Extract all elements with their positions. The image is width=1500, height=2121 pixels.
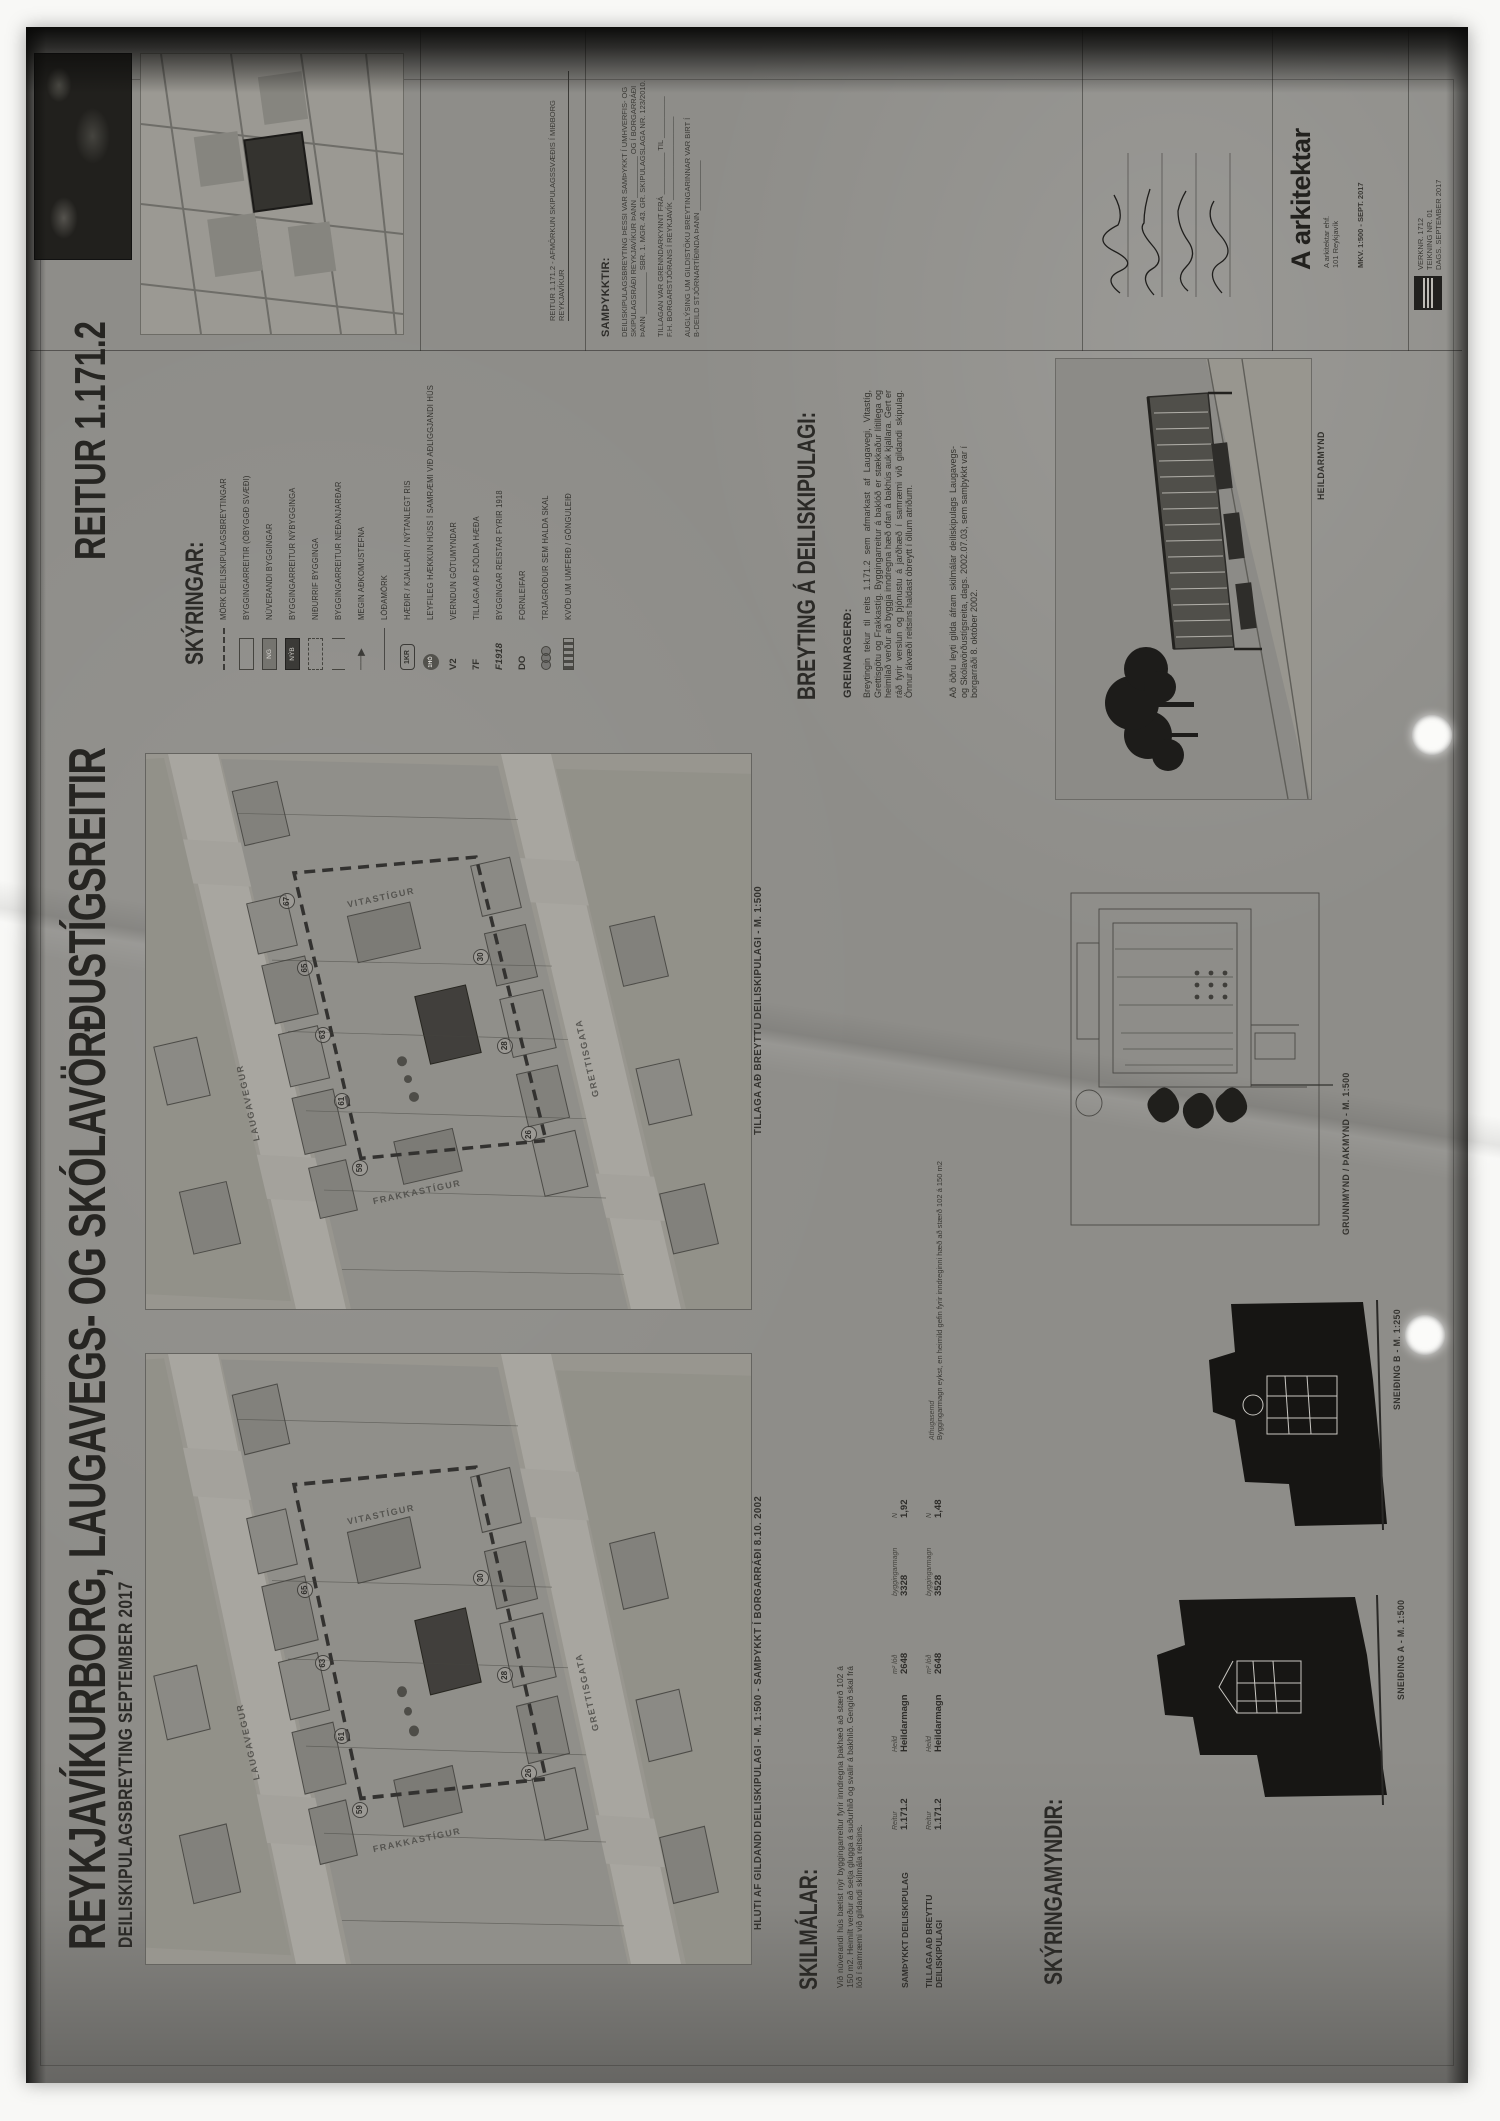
corner-info-line: VERKNR. 1712 bbox=[1416, 180, 1425, 270]
legend-item: F1918BYGGINGAR REISTAR FYRIR 1918 bbox=[488, 340, 511, 670]
legend-symbol-grey-icon: NG bbox=[262, 620, 277, 670]
legend-item-label: VERNDUN GÖTUMYNDAR bbox=[449, 522, 458, 620]
table-cell-header: N bbox=[892, 1440, 899, 1518]
architect-firm-logo-text: A arkitektar bbox=[1286, 128, 1317, 270]
legend-item-label: NIÐURRIF BYGGINGA bbox=[311, 538, 320, 620]
plot-number: 26 bbox=[521, 1765, 537, 1781]
hole-punch-1 bbox=[1412, 715, 1452, 755]
plot-number: 59 bbox=[352, 1160, 368, 1176]
table-cell: N1,48 bbox=[926, 1440, 944, 1518]
legend-item-label: FORNLEIFAR bbox=[518, 570, 527, 620]
legend-item: BYGGINGARREITUR NEÐANJARÐAR bbox=[327, 340, 350, 670]
myndir-heading: SKÝRINGAMYNDIR: bbox=[1040, 1799, 1069, 1985]
legend-item: 1HÓLEYFILEG HÆKKUN HÚSS Í SAMRÆMI VIÐ AÐ… bbox=[419, 340, 442, 670]
map-proposed-caption: TILLAGA AÐ BREYTTU DEILISKIPULAGI - M. 1… bbox=[752, 886, 764, 1135]
legend-item: NIÐURRIF BYGGINGA bbox=[304, 340, 327, 670]
legend-symbol-cir-icon: 1HÓ bbox=[423, 620, 439, 670]
table-cell-value: Heildarmagn bbox=[899, 1674, 910, 1752]
legend-item-label: BYGGINGARREITIR (ÓBYGGÐ SVÆÐI) bbox=[242, 475, 251, 620]
legend-item-label: MEGIN AÐKOMUSTEFNA bbox=[357, 527, 366, 620]
legend-item-label: MÖRK DEILISKIPULAGSBREYTINGAR bbox=[219, 478, 228, 620]
table-row-name: TILLAGA AÐ BREYTTU DEILISKIPULAGI bbox=[924, 1830, 944, 1988]
legend-symbol-rect-icon bbox=[239, 620, 254, 670]
table-row-name: SAMÞYKKT DEILISKIPULAG bbox=[900, 1830, 910, 1988]
plot-number: 28 bbox=[497, 1667, 513, 1683]
street-name-label: GRETTISGATA bbox=[573, 1652, 601, 1732]
plot-number: 59 bbox=[352, 1802, 368, 1818]
legend-symbol-txt-icon: DO bbox=[517, 620, 528, 670]
table-cell-header: m² lóð bbox=[892, 1596, 899, 1674]
plot-number: 26 bbox=[521, 1127, 537, 1143]
plot-number: 30 bbox=[473, 1570, 489, 1586]
table-cell-value: 3328 bbox=[899, 1518, 910, 1596]
legend-item: 7FTILLAGA AÐ FJÖLDA HÆÐA bbox=[465, 340, 488, 670]
table-cell: m² lóð2648 bbox=[892, 1596, 910, 1674]
legend-item: ──▶MEGIN AÐKOMUSTEFNA bbox=[350, 340, 373, 670]
scanned-plan-sheet-page: REYKJAVÍKURBORG, LAUGAVEGS- OG SKÓLAVÖRÐ… bbox=[0, 0, 1500, 2121]
map-existing-overlay: 59616365262830LAUGAVEGURGRETTISGATAFRAKK… bbox=[146, 1354, 751, 1964]
street-name-label: VITASTÍGUR bbox=[346, 1503, 415, 1527]
plot-number: 65 bbox=[297, 1582, 313, 1598]
map-existing-caption: HLUTI AF GILDANDI DEILISKIPULAGI - M. 1:… bbox=[752, 1496, 764, 1930]
table-cell: byggingarmagn3528 bbox=[926, 1518, 944, 1596]
table-cell-value: 2648 bbox=[933, 1596, 944, 1674]
legend-item: KVÖÐ UM UMFERÐ / GÖNGULEIÐ bbox=[557, 340, 580, 670]
roof-plan-caption: GRUNNMYND / ÞAKMYND - M. 1:500 bbox=[1341, 1072, 1352, 1235]
section-a-drawing bbox=[1145, 1595, 1390, 1805]
legend-symbol-dash-icon bbox=[223, 620, 225, 670]
table-note-text: Byggingarmagn eykst, en heimild gefin fy… bbox=[936, 1140, 945, 1440]
legend-item: MÖRK DEILISKIPULAGSBREYTINGAR bbox=[212, 340, 235, 670]
table-cell-value: 1.171.2 bbox=[933, 1752, 944, 1830]
legend-item: NÝBBYGGINGARREITUR NÝBYGGINGA bbox=[281, 340, 304, 670]
legend-symbol-brk-icon bbox=[332, 620, 345, 670]
legend-symbol-thin-icon bbox=[384, 620, 385, 670]
plot-number: 30 bbox=[473, 949, 489, 965]
map-existing-plan: 59616365262830LAUGAVEGURGRETTISGATAFRAKK… bbox=[145, 1353, 752, 1965]
table-cell-header: N bbox=[926, 1440, 933, 1518]
perspective-render bbox=[1055, 358, 1312, 800]
table-cell-header: byggingarmagn bbox=[892, 1518, 899, 1596]
legend-symbol-tree-icon bbox=[541, 620, 551, 670]
greinargerd-subheading: GREINARGERÐ: bbox=[842, 608, 854, 698]
table-cell-value: 2648 bbox=[899, 1596, 910, 1674]
legend-item-label: LÓÐAMÖRK bbox=[380, 575, 389, 620]
rotated-sheet-stage: REYKJAVÍKURBORG, LAUGAVEGS- OG SKÓLAVÖRÐ… bbox=[0, 0, 1500, 2121]
legend-symbol-txt-icon: 7F bbox=[471, 620, 482, 670]
section-b-caption: SNEIÐING B - M. 1:250 bbox=[1392, 1309, 1403, 1410]
legend-item: 1KRHÆÐIR / KJALLARI / NÝTANLEGT RIS bbox=[396, 340, 419, 670]
architect-firm-address: A arkitektar ehf.101 Reykjavík bbox=[1322, 216, 1340, 268]
section-a-caption: SNEIÐING A - M. 1:500 bbox=[1396, 1600, 1407, 1700]
plot-number: 65 bbox=[297, 960, 313, 976]
skilmalar-table: SAMÞYKKT DEILISKIPULAGReitur1.171.2Heild… bbox=[892, 1208, 958, 1988]
table-cell: byggingarmagn3328 bbox=[892, 1518, 910, 1596]
greinargerd-paragraph-2: Að öðru leyti gilda áfram skilmálar deil… bbox=[948, 446, 980, 698]
titleblock-divider bbox=[30, 350, 1462, 351]
plot-number: 67 bbox=[279, 893, 295, 909]
table-cell-value: 1,48 bbox=[933, 1440, 944, 1518]
skilmalar-heading: SKILMÁLAR: bbox=[795, 1869, 824, 1990]
table-cell-value: 1,92 bbox=[899, 1440, 910, 1518]
street-name-label: LAUGAVEGUR bbox=[234, 1064, 261, 1143]
skilmalar-table-row: TILLAGA AÐ BREYTTU DEILISKIPULAGIReitur1… bbox=[924, 1208, 944, 1988]
street-name-label: GRETTISGATA bbox=[573, 1018, 601, 1098]
map-proposed-plan: 5961636567262830LAUGAVEGURGRETTISGATAFRA… bbox=[145, 753, 752, 1310]
scan-shadow-top bbox=[26, 28, 46, 2083]
skilmalar-table-row: SAMÞYKKT DEILISKIPULAGReitur1.171.2Heild… bbox=[892, 1208, 910, 1988]
samthykktir-heading: SAMÞYKKTIR: bbox=[600, 257, 612, 337]
legend-symbol-rect2-icon bbox=[308, 620, 323, 670]
legend-symbol-hatch-icon bbox=[563, 620, 574, 670]
legend-symbol-arrow-icon: ──▶ bbox=[356, 620, 367, 670]
table-row-note: AthugasemdByggingarmagn eykst, en heimil… bbox=[929, 1140, 945, 1440]
legend-item: TRJÁGRÓÐUR SEM HALDA SKAL bbox=[534, 340, 557, 670]
legend-item-label: HÆÐIR / KJALLARI / NÝTANLEGT RIS bbox=[403, 480, 412, 620]
legend-item: NGNÚVERANDI BYGGINGAR bbox=[258, 340, 281, 670]
street-name-label: FRAKKASTÍGUR bbox=[372, 1825, 462, 1853]
street-name-label: FRAKKASTÍGUR bbox=[372, 1178, 462, 1206]
legend-symbol-dark-icon: NÝB bbox=[285, 620, 300, 670]
plot-number: 61 bbox=[334, 1093, 350, 1109]
firm-address-line: A arkitektar ehf. bbox=[1322, 216, 1331, 268]
table-cell-value: 3528 bbox=[933, 1518, 944, 1596]
legend-symbol-txt-icon: V2 bbox=[448, 620, 459, 670]
association-logo-icon bbox=[1414, 276, 1442, 310]
legend-item: BYGGINGARREITIR (ÓBYGGÐ SVÆÐI) bbox=[235, 340, 258, 670]
legend-item-label: BYGGINGAR REISTAR FYRIR 1918 bbox=[495, 490, 504, 620]
plot-number: 28 bbox=[497, 1038, 513, 1054]
signature-block bbox=[1096, 133, 1246, 303]
plot-number: 61 bbox=[334, 1728, 350, 1744]
section-b-drawing bbox=[1205, 1300, 1390, 1530]
legend-item: DOFORNLEIFAR bbox=[511, 340, 534, 670]
plot-number: 63 bbox=[315, 1655, 331, 1671]
legend-item-label: TILLAGA AÐ FJÖLDA HÆÐA bbox=[472, 516, 481, 620]
legend-item-label: KVÖÐ UM UMFERÐ / GÖNGULEIÐ bbox=[564, 493, 573, 620]
greinargerd-paragraph-1: Breytingin tekur til reits 1.171.2 sem a… bbox=[862, 390, 915, 698]
scale-date-line: MKV. 1:500 - SEPT. 2017 bbox=[1356, 182, 1365, 268]
table-cell-header: m² lóð bbox=[926, 1596, 933, 1674]
table-cell-value: 1.171.2 bbox=[899, 1752, 910, 1830]
skilmalar-paragraph: Við núverandi hús bætist nýr byggingarre… bbox=[836, 1666, 865, 1988]
table-cell: N1,92 bbox=[892, 1440, 910, 1518]
legend-item-label: BYGGINGARREITUR NÝBYGGINGA bbox=[288, 488, 297, 620]
table-cell: Reitur1.171.2 bbox=[892, 1752, 910, 1830]
table-cell: HeildHeildarmagn bbox=[926, 1674, 944, 1752]
legend-item-label: LEYFILEG HÆKKUN HÚSS Í SAMRÆMI VIÐ AÐLIG… bbox=[426, 385, 435, 620]
table-cell: Reitur1.171.2 bbox=[926, 1752, 944, 1830]
breyting-heading: BREYTING Á DEILISKIPULAGI: bbox=[793, 412, 822, 700]
table-cell-header: Heild bbox=[926, 1674, 933, 1752]
page-subtitle: DEILISKIPULAGSBREYTING SEPTEMBER 2017 bbox=[116, 1501, 138, 1948]
location-site-plan-caption: REITUR 1.171.2 - AFMÖRKUN SKIPULAGSSVÆÐI… bbox=[548, 71, 569, 321]
corner-info-line: DAGS. SEPTEMBER 2017 bbox=[1434, 180, 1443, 270]
roof-plan-drawing bbox=[1055, 880, 1335, 1235]
table-cell: HeildHeildarmagn bbox=[892, 1674, 910, 1752]
hole-punch-2 bbox=[1405, 1315, 1445, 1355]
legend-item-label: BYGGINGARREITUR NEÐANJARÐAR bbox=[334, 481, 343, 620]
table-cell-header: Heild bbox=[892, 1674, 899, 1752]
legend-item: LÓÐAMÖRK bbox=[373, 340, 396, 670]
corner-info-line: TEIKNING NR. 01 bbox=[1425, 180, 1434, 270]
legend-item-label: NÚVERANDI BYGGINGAR bbox=[265, 523, 274, 620]
plot-number: 63 bbox=[315, 1027, 331, 1043]
street-name-label: LAUGAVEGUR bbox=[234, 1703, 261, 1782]
scan-shadow-bottom bbox=[1446, 28, 1468, 2083]
legend-item: V2VERNDUN GÖTUMYNDAR bbox=[442, 340, 465, 670]
firm-address-line: 101 Reykjavík bbox=[1331, 216, 1340, 268]
table-cell-header: Reitur bbox=[892, 1752, 899, 1830]
table-cell-value: Heildarmagn bbox=[933, 1674, 944, 1752]
street-name-label: VITASTÍGUR bbox=[346, 885, 415, 909]
legend-symbol-oct-icon: 1KR bbox=[400, 620, 415, 670]
table-cell-header: Reitur bbox=[926, 1752, 933, 1830]
table-cell: m² lóð2648 bbox=[926, 1596, 944, 1674]
legend-symbol-itxt-icon: F1918 bbox=[494, 620, 505, 670]
sheet-corner-info: VERKNR. 1712TEIKNING NR. 01DAGS. SEPTEMB… bbox=[1416, 180, 1443, 270]
map-proposed-overlay: 5961636567262830LAUGAVEGURGRETTISGATAFRA… bbox=[146, 754, 751, 1309]
location-site-plan bbox=[140, 53, 404, 335]
perspective-caption: HEILDARMYND bbox=[1316, 431, 1327, 500]
legend-list: MÖRK DEILISKIPULAGSBREYTINGARBYGGINGARRE… bbox=[212, 340, 580, 670]
scan-shadow-right bbox=[26, 27, 1468, 93]
table-cell-header: byggingarmagn bbox=[926, 1518, 933, 1596]
sheet-number: REITUR 1.171.2 bbox=[66, 237, 116, 560]
legend-item-label: TRJÁGRÓÐUR SEM HALDA SKAL bbox=[541, 495, 550, 620]
legend-heading: SKÝRINGAR: bbox=[181, 541, 210, 665]
